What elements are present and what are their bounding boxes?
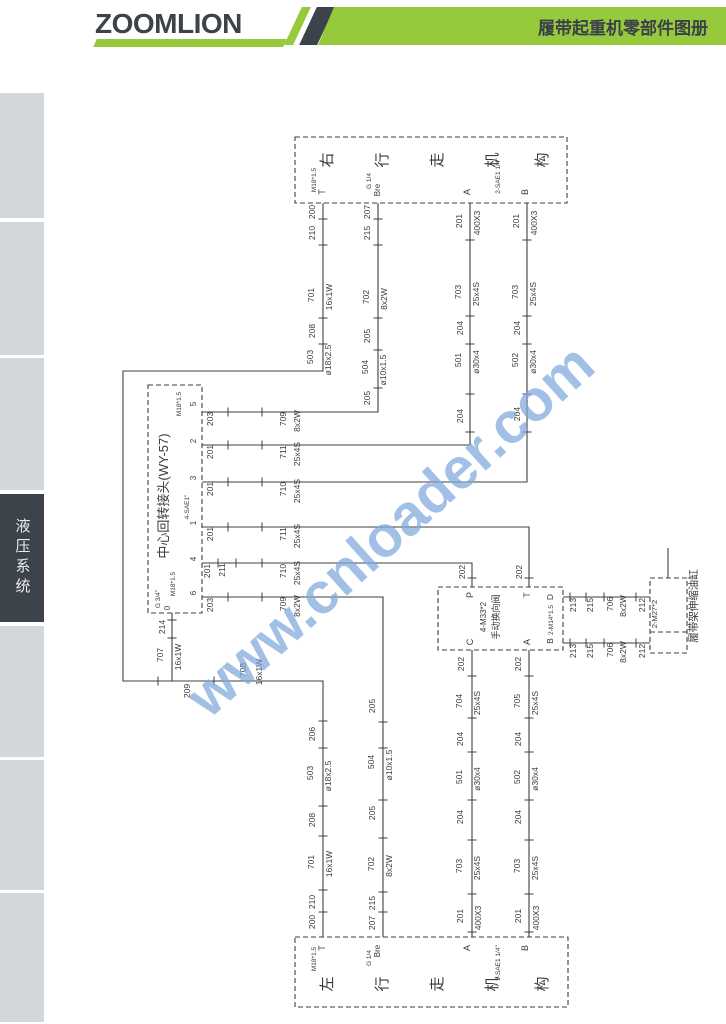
diagram-label: 6 bbox=[189, 590, 198, 595]
diagram-label: 400X3 bbox=[529, 210, 539, 235]
diagram-label: B bbox=[520, 945, 530, 951]
diagram-label: 703 bbox=[510, 285, 520, 299]
diagram-label: 25x4S bbox=[528, 282, 538, 306]
diagram-label: 210 bbox=[307, 895, 317, 909]
diagram-label: 2-SAE1 1/4" bbox=[495, 945, 502, 981]
diagram-label: 208 bbox=[307, 813, 317, 827]
diagram-label: 709 bbox=[278, 597, 288, 611]
diagram-label: 706 bbox=[605, 597, 615, 611]
diagram-label: 201 bbox=[455, 909, 465, 923]
diagram-label: 202 bbox=[457, 565, 467, 579]
diagram-label: 8x2W bbox=[292, 410, 302, 432]
diagram-label: 走 bbox=[429, 976, 446, 991]
diagram-label: ø30x4 bbox=[528, 350, 538, 374]
a-top-line bbox=[202, 203, 470, 445]
diagram-label: 213 bbox=[568, 644, 578, 658]
diagram-label: 706 bbox=[605, 643, 615, 657]
diagram-label: 215 bbox=[585, 644, 595, 658]
diagram-label: 711 bbox=[278, 445, 288, 459]
diagram-label: 400X3 bbox=[531, 905, 541, 930]
diagram-label: 207 bbox=[367, 916, 377, 930]
diagram-label: 202 bbox=[456, 657, 466, 671]
diagram-label: 8x2W bbox=[379, 288, 389, 310]
diagram-label: 504 bbox=[366, 755, 376, 769]
diagram-label: 行 bbox=[374, 152, 391, 167]
diagram-label: 501 bbox=[453, 353, 463, 367]
diagram-label: ø30x4 bbox=[472, 767, 482, 791]
diagram-label: 3 bbox=[189, 475, 198, 480]
diagram-label: 710 bbox=[278, 564, 288, 578]
diagram-label: 8x2W bbox=[618, 641, 628, 663]
diagram-label: 25x4S bbox=[471, 282, 481, 306]
diagram-label: 204 bbox=[512, 321, 522, 335]
diagram-label: 204 bbox=[455, 810, 465, 824]
diagram-label: 200 bbox=[307, 205, 317, 219]
diagram-label: 行 bbox=[374, 976, 391, 991]
diagram-label: 400X3 bbox=[473, 905, 483, 930]
diagram-label: 16x1W bbox=[324, 284, 334, 310]
diagram-label: D bbox=[545, 594, 555, 600]
diagram-label: C bbox=[465, 638, 475, 645]
diagram-label: 215 bbox=[585, 598, 595, 612]
diagram-label: 204 bbox=[455, 409, 465, 423]
diagram-label: 8x2W bbox=[384, 855, 394, 877]
diagram-label: 25x4S bbox=[530, 691, 540, 715]
diagram-label: 25x4S bbox=[292, 524, 302, 548]
diagram-label: 2-SAE1 1/4" bbox=[495, 158, 502, 194]
diagram-label: A bbox=[522, 639, 532, 645]
diagram-label: 711 bbox=[278, 527, 288, 541]
diagram-label: 履带架伸缩油缸 bbox=[687, 569, 700, 643]
diagram-label: 708 bbox=[238, 663, 248, 677]
diagram-label: 204 bbox=[455, 321, 465, 335]
diagram-label: 501 bbox=[454, 770, 464, 784]
diagram-label: 0 bbox=[163, 605, 172, 610]
diagram-label: 213 bbox=[568, 598, 578, 612]
diagram-label: 503 bbox=[305, 350, 315, 364]
diagram-label: P bbox=[465, 592, 475, 598]
diagram-label: 1 bbox=[189, 520, 198, 525]
diagram-label: 212 bbox=[637, 644, 647, 658]
diagram-label: 16x1W bbox=[254, 659, 264, 685]
diagram-label: 503 bbox=[305, 766, 315, 780]
diagram-label: 201 bbox=[513, 909, 523, 923]
diagram-label: 701 bbox=[306, 288, 316, 302]
diagram-label: 703 bbox=[512, 859, 522, 873]
diagram-label: G 3/4" bbox=[155, 589, 162, 608]
port6-line bbox=[202, 597, 383, 937]
diagram-label: 25x4S bbox=[472, 691, 482, 715]
diagram-label: 手动换向阀 bbox=[490, 594, 501, 639]
diagram-label: 204 bbox=[513, 732, 523, 746]
diagram-label: 502 bbox=[512, 770, 522, 784]
diagram-label: 走 bbox=[429, 152, 446, 167]
diagram-label: 701 bbox=[306, 855, 316, 869]
diagram-label: T bbox=[317, 945, 327, 951]
diagram-label: 207 bbox=[362, 205, 372, 219]
diagram-label: 左 bbox=[319, 976, 336, 991]
diagram-label: 400X3 bbox=[472, 210, 482, 235]
diagram-label: 215 bbox=[362, 226, 372, 240]
diagram-label: 201 bbox=[511, 214, 521, 228]
diagram-label: M18*1.5 bbox=[311, 168, 318, 193]
diagram-label: 204 bbox=[512, 407, 522, 421]
diagram-label: 构 bbox=[534, 152, 551, 167]
diagram-label: 构 bbox=[534, 976, 551, 991]
diagram-label: M18*1.5 bbox=[170, 572, 177, 597]
diagram-label: 703 bbox=[453, 285, 463, 299]
diagram-label: ø30x4 bbox=[471, 350, 481, 374]
diagram-label: 710 bbox=[278, 482, 288, 496]
diagram-label: 205 bbox=[362, 391, 372, 405]
diagram-label: 205 bbox=[362, 329, 372, 343]
diagram-label: 2-M27*2 bbox=[650, 600, 659, 628]
diagram-label: 703 bbox=[454, 859, 464, 873]
diagram-label: B bbox=[545, 638, 555, 644]
diagram-label: 16x1W bbox=[324, 851, 334, 877]
bre-top-line bbox=[202, 203, 378, 412]
diagram-label: 204 bbox=[455, 732, 465, 746]
diagram-label: 709 bbox=[278, 412, 288, 426]
diagram-label: A bbox=[462, 189, 472, 195]
diagram-label: B bbox=[520, 189, 530, 195]
diagram-label: 208 bbox=[307, 324, 317, 338]
diagram-label: 704 bbox=[454, 694, 464, 708]
diagram-label: 209 bbox=[182, 684, 192, 698]
diagram-label: 2-M14*1.5 bbox=[548, 605, 555, 635]
diagram-label: 201 bbox=[202, 564, 212, 578]
diagram-label: 8x2W bbox=[292, 595, 302, 617]
diagram-label: Bre bbox=[373, 944, 382, 957]
diagram-label: 4-M33*2 bbox=[479, 601, 488, 632]
diagram-label: 25x4S bbox=[292, 479, 302, 503]
diagram-label: Bre bbox=[373, 183, 382, 196]
diagram-label: 210 bbox=[307, 226, 317, 240]
diagram-label: 203 bbox=[205, 412, 215, 426]
diagram-label: ø30x4 bbox=[530, 767, 540, 791]
hydraulic-schematic: 右行走机构M18*1.5TG 1/4BreA2-SAE1 1/4"B200210… bbox=[0, 0, 726, 1024]
diagram-label: T bbox=[522, 592, 532, 598]
diagram-label: 206 bbox=[307, 727, 317, 741]
diagram-label: 中心回转接头(WY-57) bbox=[156, 433, 171, 558]
port1-line bbox=[202, 527, 529, 587]
diagram-label: 2 bbox=[189, 438, 198, 443]
diagram-label: ø10x1.5 bbox=[384, 749, 394, 780]
diagram-label: 202 bbox=[513, 657, 523, 671]
diagram-label: 25x4S bbox=[530, 856, 540, 880]
catalog-page: ZOOMLION 履带起重机零部件图册 液压系统 右行走机构M18*1.5TG … bbox=[0, 0, 726, 1024]
diagram-label: 4 bbox=[189, 556, 198, 561]
diagram-label: 25x4S bbox=[472, 856, 482, 880]
diagram-label: 705 bbox=[512, 694, 522, 708]
diagram-label: ø18x2.5 bbox=[323, 760, 333, 791]
diagram-label: 212 bbox=[637, 598, 647, 612]
diagram-label: 702 bbox=[361, 290, 371, 304]
diagram-label: ø10x1.5 bbox=[378, 354, 388, 385]
diagram-label: 215 bbox=[367, 896, 377, 910]
diagram-label: 203 bbox=[205, 598, 215, 612]
diagram-label: 200 bbox=[307, 915, 317, 929]
diagram-label: ø18x2.5 bbox=[323, 344, 333, 375]
diagram-label: T bbox=[317, 189, 327, 195]
diagram-label: 201 bbox=[454, 214, 464, 228]
diagram-label: 502 bbox=[510, 353, 520, 367]
diagram-label: 25x4S bbox=[292, 442, 302, 466]
diagram-label: M18*1.5 bbox=[176, 392, 183, 417]
diagram-label: 205 bbox=[367, 806, 377, 820]
port4-line bbox=[202, 563, 472, 587]
diagram-label: 5 bbox=[189, 401, 198, 406]
diagram-label: 201 bbox=[205, 482, 215, 496]
diagram-label: 205 bbox=[367, 699, 377, 713]
diagram-label: G 1/4 bbox=[366, 950, 373, 966]
diagram-label: G 1/4 bbox=[366, 173, 373, 189]
diagram-label: 201 bbox=[205, 445, 215, 459]
diagram-label: 202 bbox=[514, 565, 524, 579]
diagram-label: 201 bbox=[205, 527, 215, 541]
diagram-label: 702 bbox=[366, 857, 376, 871]
diagram-label: 16x1W bbox=[173, 644, 183, 670]
diagram-label: 8x2W bbox=[618, 595, 628, 617]
diagram-label: 204 bbox=[513, 810, 523, 824]
diagram-label: 211 bbox=[217, 563, 227, 577]
diagram-label: 707 bbox=[155, 648, 165, 662]
diagram-label: 4-SAE1" bbox=[184, 494, 191, 519]
diagram-label: 214 bbox=[157, 620, 167, 634]
diagram-label: 25x4S bbox=[292, 561, 302, 585]
diagram-label: A bbox=[462, 945, 472, 951]
diagram-label: 右 bbox=[319, 152, 336, 167]
diagram-label: 504 bbox=[360, 360, 370, 374]
